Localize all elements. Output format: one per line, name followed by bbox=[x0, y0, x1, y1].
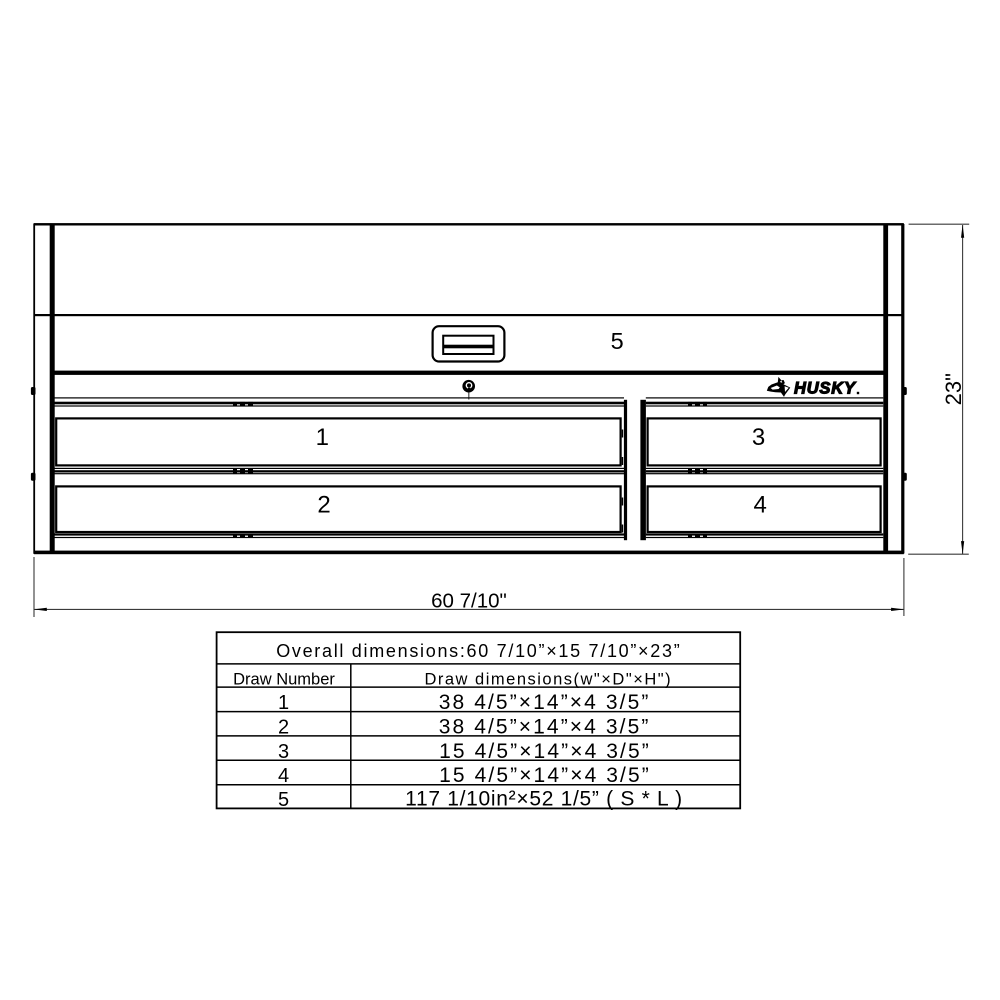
svg-text:38 4/5”×14”×4 3/5”: 38 4/5”×14”×4 3/5” bbox=[439, 716, 651, 739]
svg-text:60 7/10": 60 7/10" bbox=[431, 589, 507, 612]
svg-text:5: 5 bbox=[611, 328, 624, 354]
svg-text:1: 1 bbox=[316, 424, 329, 451]
svg-text:Overall dimensions:60 7/10”×15: Overall dimensions:60 7/10”×15 7/10”×23” bbox=[276, 641, 681, 661]
svg-text:117 1/10in²×52 1/5” ( S * L ): 117 1/10in²×52 1/5” ( S * L ) bbox=[405, 788, 683, 811]
svg-text:2: 2 bbox=[278, 717, 289, 739]
svg-text:15 4/5”×14”×4 3/5”: 15 4/5”×14”×4 3/5” bbox=[439, 740, 651, 763]
svg-text:Draw dimensions(w"×D"×H"): Draw dimensions(w"×D"×H") bbox=[424, 671, 672, 689]
svg-text:38 4/5”×14”×4 3/5”: 38 4/5”×14”×4 3/5” bbox=[439, 691, 651, 714]
svg-text:3: 3 bbox=[278, 741, 289, 763]
svg-text:15 4/5”×14”×4 3/5”: 15 4/5”×14”×4 3/5” bbox=[439, 764, 651, 787]
svg-text:HUSKY: HUSKY bbox=[794, 379, 857, 397]
svg-text:4: 4 bbox=[278, 765, 289, 787]
svg-text:2: 2 bbox=[317, 492, 330, 519]
svg-text:1: 1 bbox=[278, 692, 289, 714]
svg-text:23": 23" bbox=[941, 373, 966, 405]
svg-text:Draw Number: Draw Number bbox=[233, 671, 335, 689]
svg-text:4: 4 bbox=[754, 492, 767, 519]
svg-text:5: 5 bbox=[278, 789, 289, 811]
svg-text:3: 3 bbox=[752, 424, 765, 451]
